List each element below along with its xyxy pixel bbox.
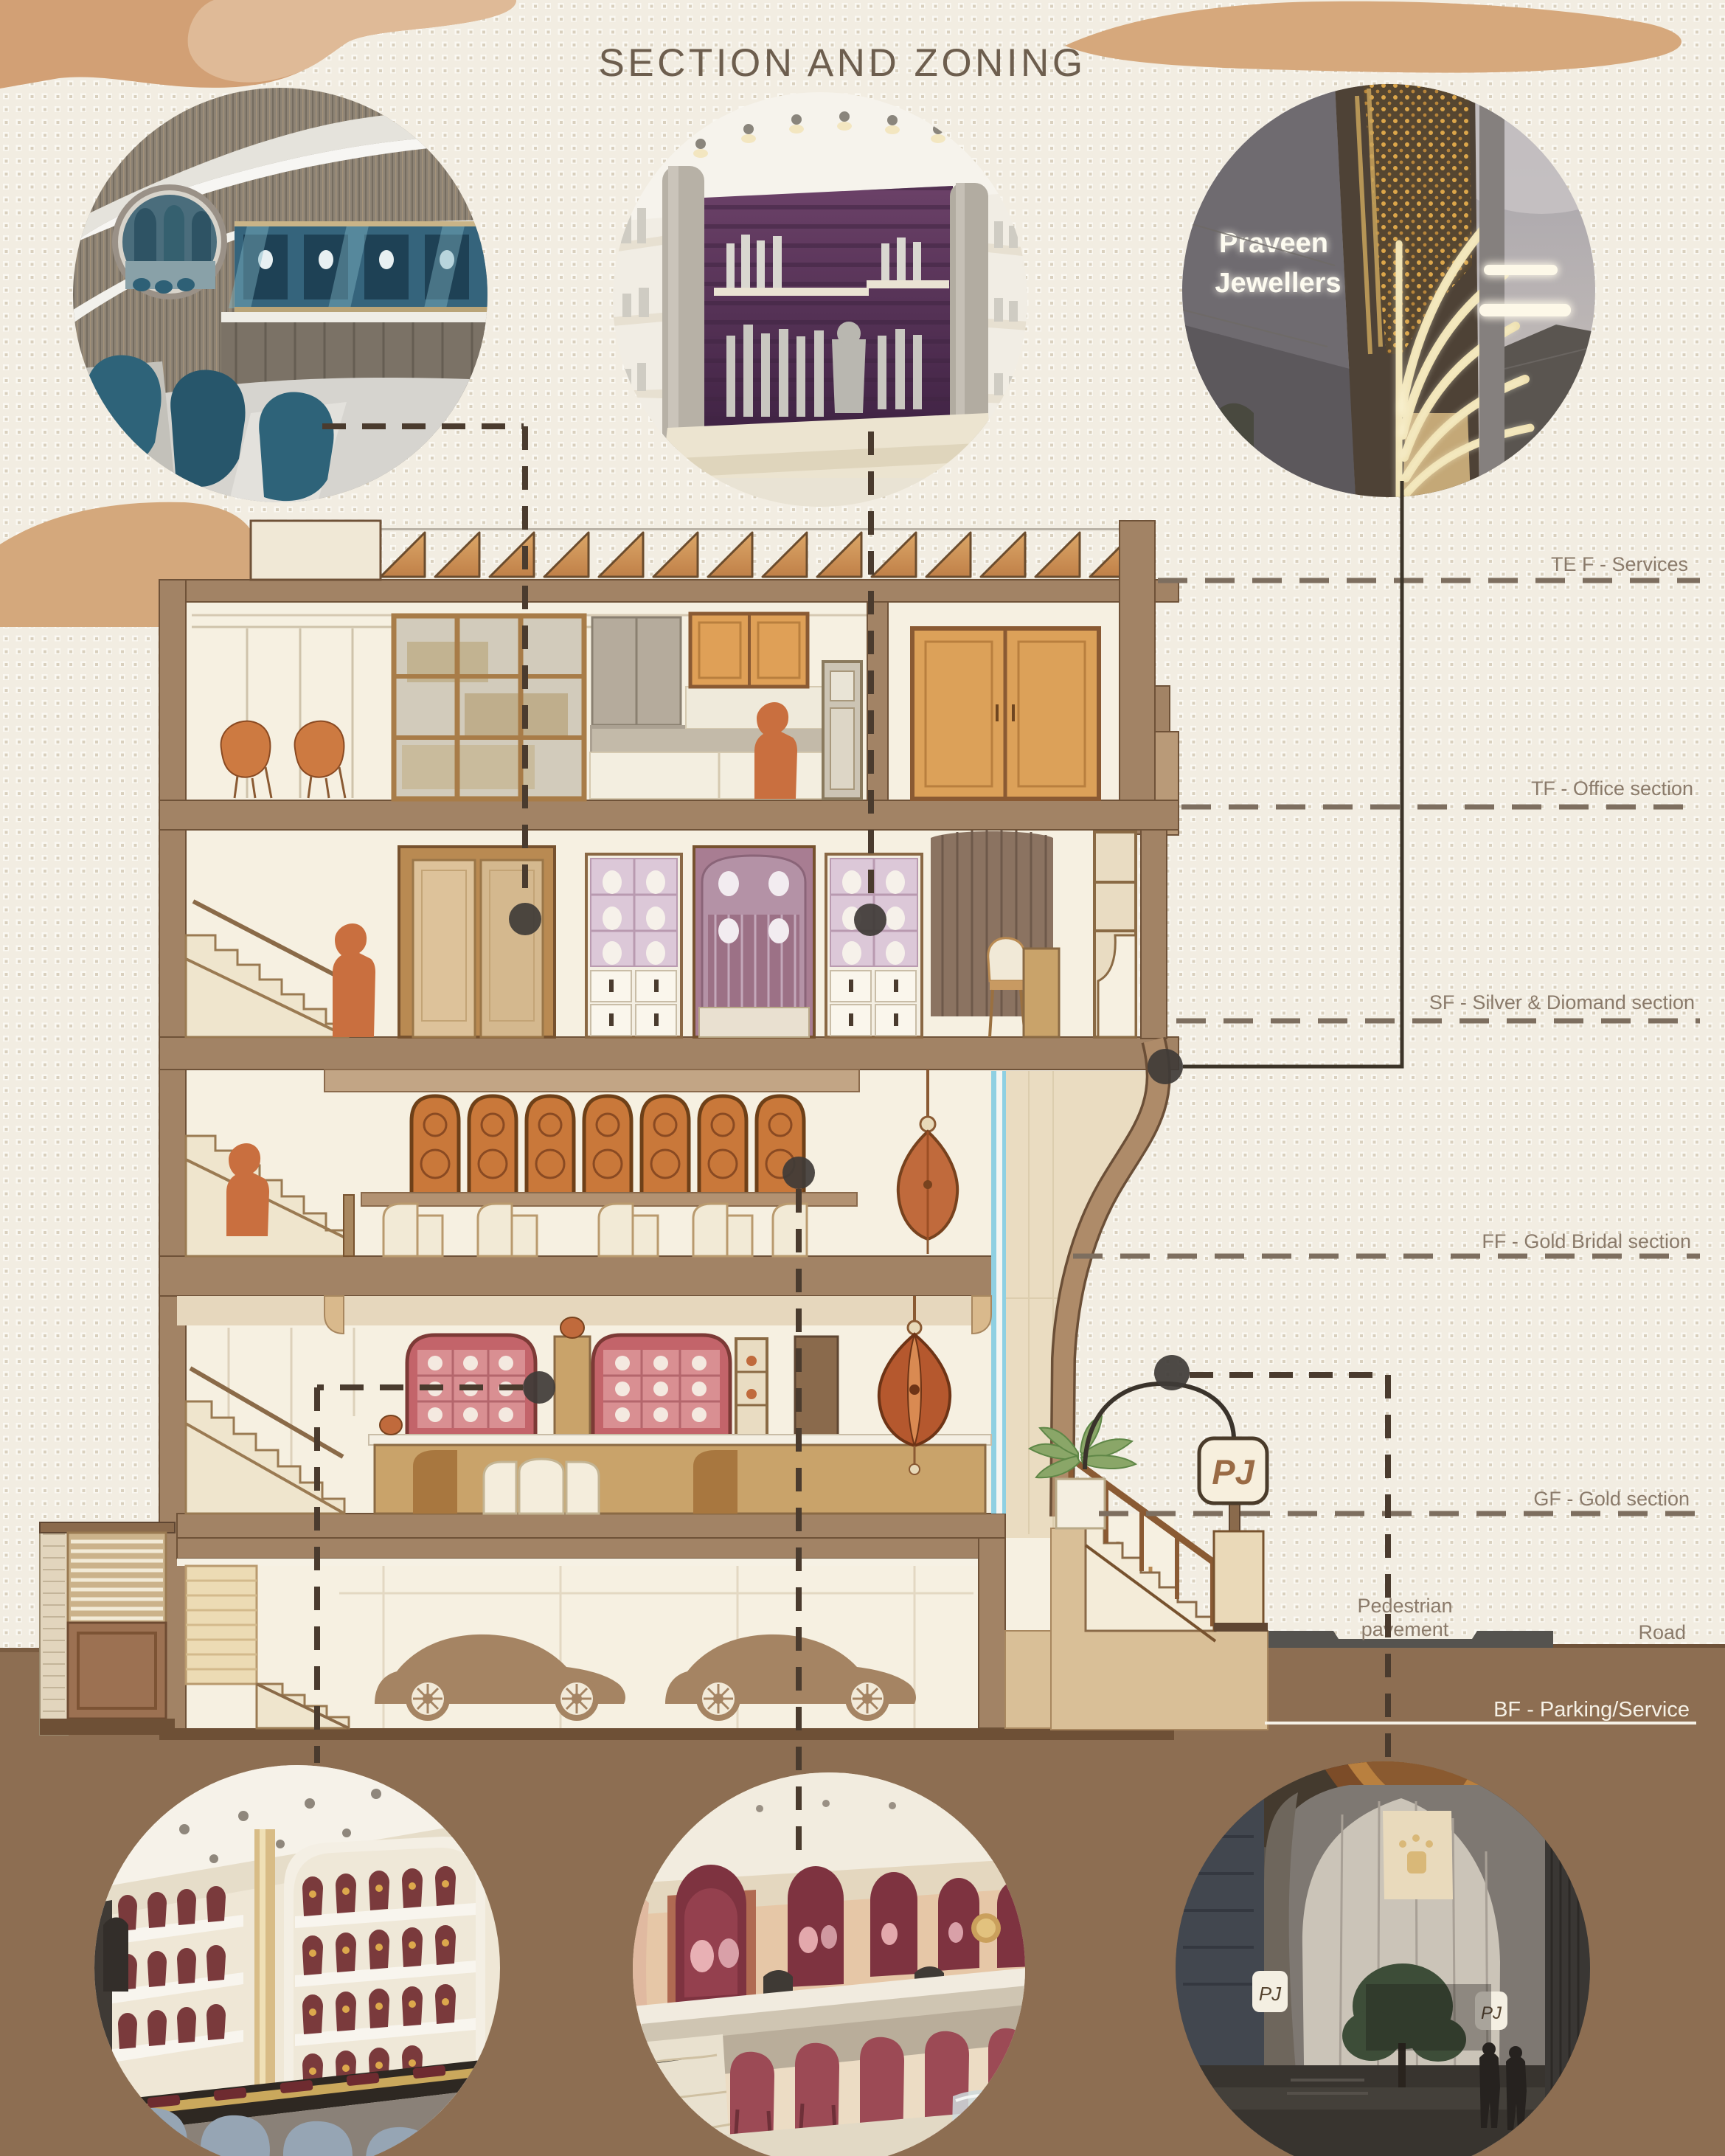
svg-text:Pedestrian: Pedestrian — [1357, 1595, 1452, 1617]
svg-text:pavement: pavement — [1361, 1618, 1449, 1640]
svg-text:BF - Parking/Service: BF - Parking/Service — [1493, 1698, 1690, 1722]
svg-text:FF - Gold Bridal section: FF - Gold Bridal section — [1482, 1230, 1691, 1252]
svg-text:SF - Silver & Diomand section: SF - Silver & Diomand section — [1429, 991, 1695, 1013]
svg-text:SECTION AND ZONING: SECTION AND ZONING — [598, 41, 1086, 85]
svg-text:GF - Gold section: GF - Gold section — [1533, 1488, 1690, 1510]
svg-text:Praveen: Praveen — [1219, 228, 1328, 259]
svg-text:PJ: PJ — [1259, 1983, 1282, 2005]
svg-text:TF - Office section: TF - Office section — [1531, 777, 1693, 800]
svg-text:TE F - Services: TE F - Services — [1551, 553, 1688, 575]
svg-text:PJ: PJ — [1212, 1452, 1254, 1491]
svg-text:Road: Road — [1638, 1621, 1686, 1643]
svg-text:Jewellers: Jewellers — [1215, 268, 1341, 299]
